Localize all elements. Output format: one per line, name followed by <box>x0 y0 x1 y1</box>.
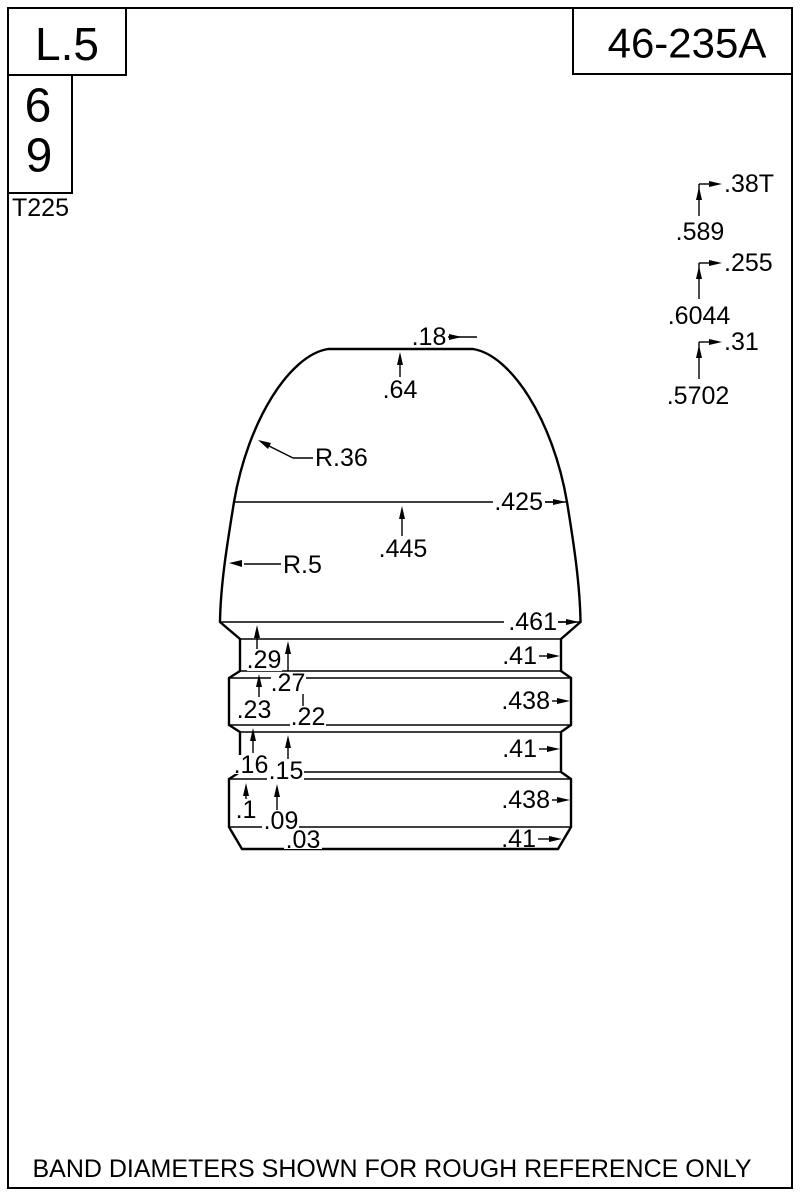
dim-left-1: .1 <box>236 796 257 824</box>
dim-ogive-diameter: .425 <box>494 488 543 516</box>
dim-left-27: .27 <box>271 669 306 697</box>
diameter-dimension-arrows <box>448 334 579 842</box>
dim-band-438-1: .438 <box>501 687 550 715</box>
dim-left-23: .23 <box>237 696 272 724</box>
ref-dim-value-2: .6044 <box>668 302 731 330</box>
engineering-drawing: L.5 6 9 T225 46-235A .38T .589 .255 .604… <box>0 0 800 1200</box>
dim-upper-radius: R.36 <box>315 444 368 472</box>
length-code-label: L.5 <box>35 18 99 70</box>
template-code-label: T225 <box>12 194 69 222</box>
radius-leaders <box>229 440 313 567</box>
dim-shoulder-diameter: .461 <box>508 608 557 636</box>
dim-lower-radius: R.5 <box>283 551 322 579</box>
dim-band-41-3: .41 <box>501 825 536 853</box>
dim-band-41-1: .41 <box>502 642 537 670</box>
drawing-border <box>8 8 792 1188</box>
design-number-label: 46-235A <box>608 20 767 67</box>
dim-left-16: .16 <box>234 751 269 779</box>
cavity-count-top: 6 <box>25 80 52 133</box>
ref-dim-label-3: .31 <box>724 328 759 356</box>
dim-band-41-2: .41 <box>502 735 537 763</box>
dim-ogive-length: .445 <box>379 535 428 563</box>
ref-dim-label-2: .255 <box>724 249 773 277</box>
dim-meplat: .18 <box>412 323 447 351</box>
dim-left-22: .22 <box>291 703 326 731</box>
length-dimension-arrows <box>243 352 405 810</box>
ref-dim-value-1: .589 <box>676 218 725 246</box>
footer-note: BAND DIAMETERS SHOWN FOR ROUGH REFERENCE… <box>32 1155 751 1183</box>
drawing-sheet: L.5 6 9 T225 46-235A .38T .589 .255 .604… <box>0 0 800 1200</box>
dim-left-03: .03 <box>286 826 321 854</box>
ref-dim-value-3: .5702 <box>667 382 730 410</box>
dim-nose-length: .64 <box>383 376 418 404</box>
cavity-count-bottom: 9 <box>26 130 53 183</box>
reference-dimension-elbows <box>696 181 722 379</box>
ref-dim-label-1: .38T <box>724 170 774 198</box>
dim-left-15: .15 <box>269 757 304 785</box>
dim-band-438-2: .438 <box>501 786 550 814</box>
